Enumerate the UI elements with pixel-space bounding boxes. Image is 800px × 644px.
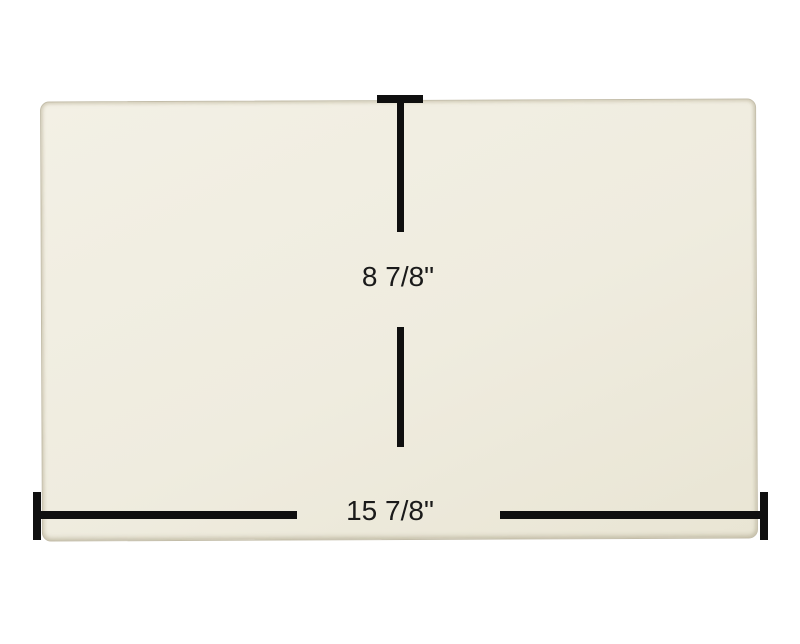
width-dimension-right-cap (760, 492, 768, 540)
product-dimension-diagram: 8 7/8" 15 7/8" (0, 0, 800, 644)
height-dimension-label: 8 7/8" (328, 262, 468, 292)
width-dimension-line-right (500, 511, 760, 519)
width-dimension-left-cap (33, 492, 41, 540)
height-dimension-line-lower (397, 327, 404, 447)
height-dimension-top-cap (377, 95, 423, 103)
height-dimension-line-upper (397, 103, 404, 232)
width-dimension-label: 15 7/8" (318, 496, 462, 526)
width-dimension-line-left (41, 511, 297, 519)
